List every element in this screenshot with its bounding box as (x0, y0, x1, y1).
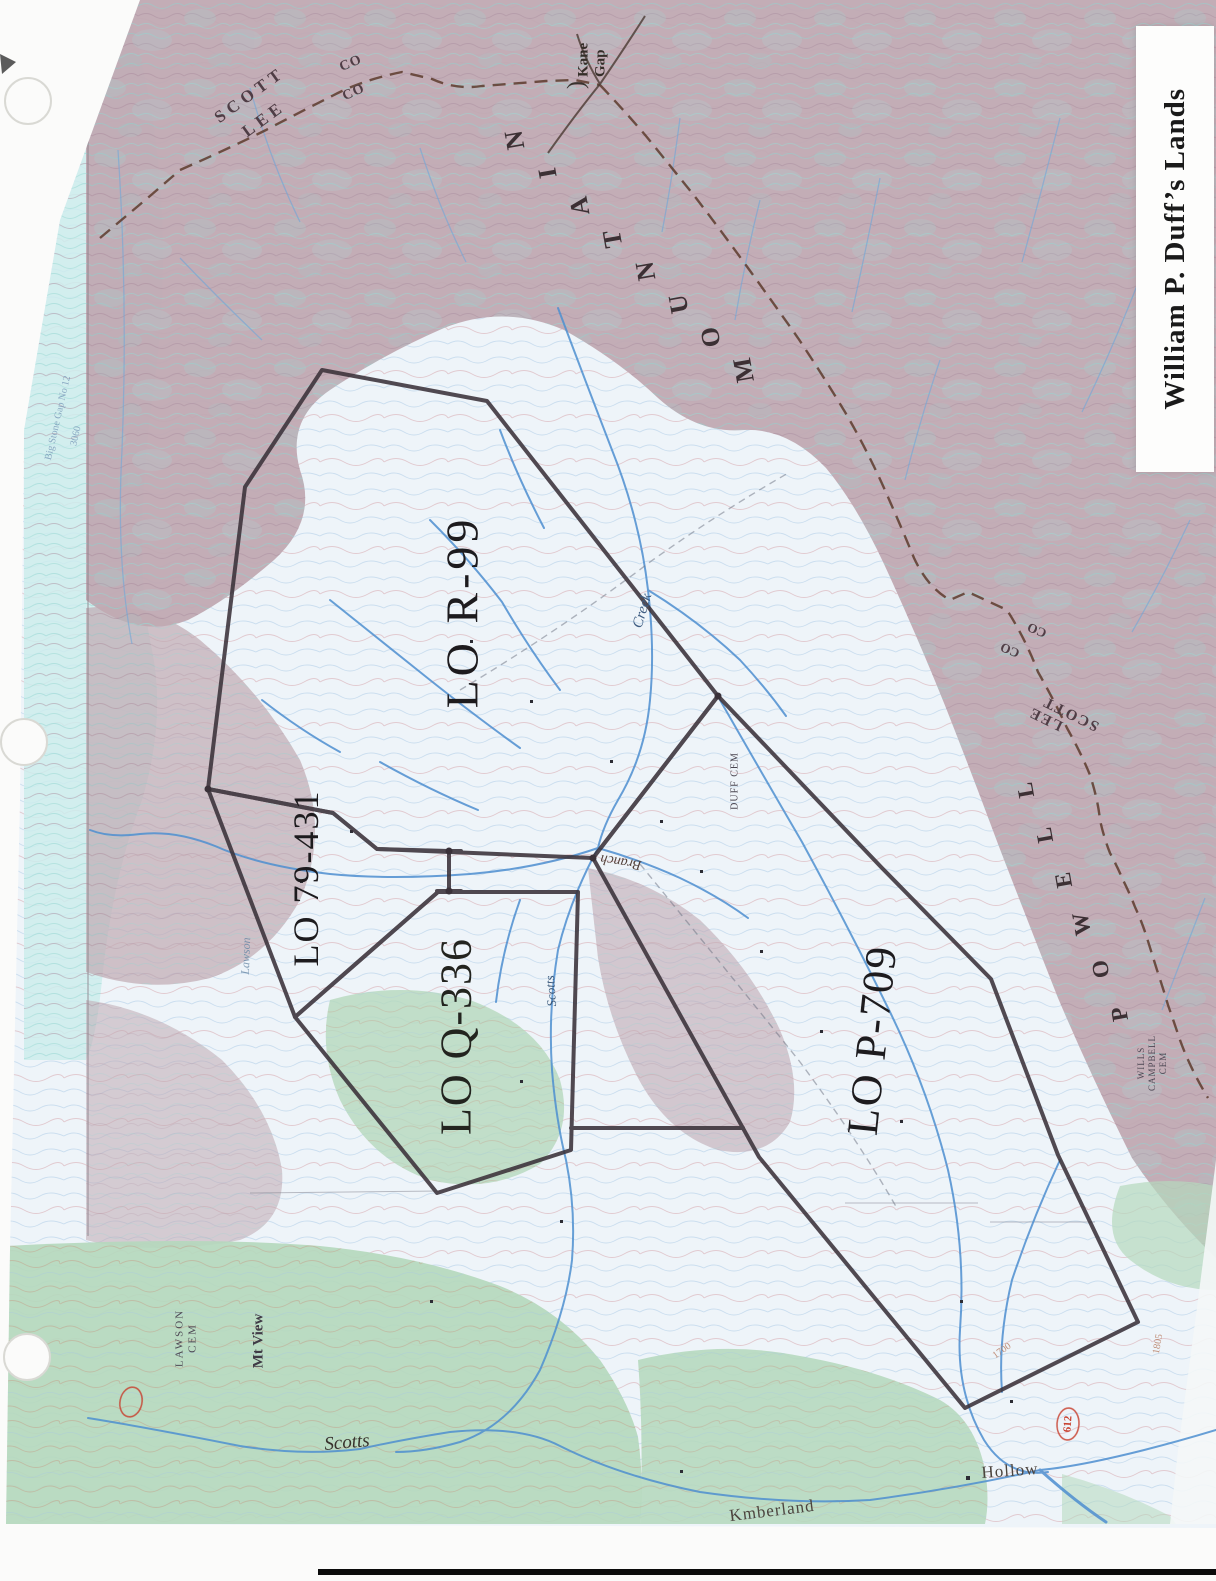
punch-hole (1, 719, 47, 765)
map-title: William P. Duff’s Lands (1159, 88, 1192, 410)
punch-hole (5, 78, 51, 124)
punch-hole (4, 1334, 50, 1380)
topo-basemap (0, 0, 1216, 1581)
title-strip: William P. Duff’s Lands (1136, 26, 1214, 472)
scan-speck (0, 54, 16, 74)
scan-artifact-line (318, 1569, 1216, 1575)
scanned-topo-map-page: LO R-99 LO 79-431 LO Q-336 LO P-709 SCOT… (0, 0, 1216, 1581)
